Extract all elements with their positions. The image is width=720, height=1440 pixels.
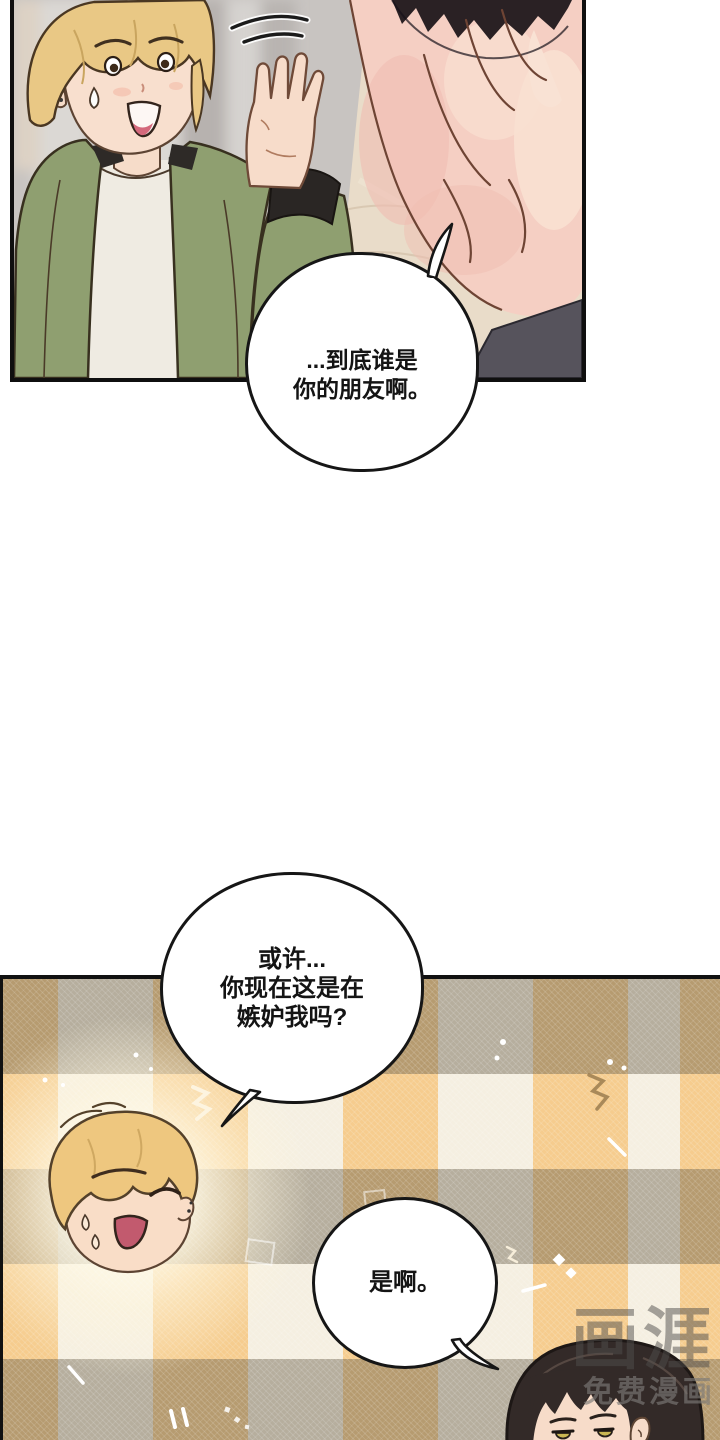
speech-bubble-1: ...到底谁是 你的朋友啊。	[245, 252, 479, 472]
bubble2-tail	[216, 1086, 264, 1130]
chibi-blond-face	[33, 1099, 223, 1289]
bubble2-line: 你现在这是在	[220, 974, 364, 1003]
sparkle-square-trail	[224, 1406, 249, 1429]
bubble3-tail	[448, 1336, 504, 1372]
sparkle-diamond	[565, 1267, 576, 1278]
sparkle-slash	[171, 1409, 187, 1427]
watermark: 画涯 免费漫画	[571, 1306, 715, 1408]
sparkle-diamond	[553, 1253, 566, 1266]
sparkle-zigzag	[589, 1075, 607, 1109]
white-shirt	[88, 160, 182, 378]
watermark-tagline: 免费漫画	[571, 1378, 715, 1408]
watermark-logo: 画涯	[571, 1306, 715, 1374]
bubble1-tail	[420, 222, 456, 278]
sparkle-square-outline	[246, 1239, 275, 1264]
yellow-eye-right	[598, 1431, 612, 1437]
bubble2-line: 或许...	[258, 945, 326, 974]
bubble1-line: 你的朋友啊。	[293, 375, 431, 404]
sparkle-zigzag	[507, 1247, 517, 1262]
bubble3-line: 是啊。	[369, 1268, 441, 1298]
comic-page: ...到底谁是 你的朋友啊。 或许... 你现在这是在 嫉妒我吗? 是啊。 画涯…	[0, 0, 720, 1440]
bubble2-line: 嫉妒我吗?	[237, 1003, 348, 1032]
speech-bubble-2: 或许... 你现在这是在 嫉妒我吗?	[160, 872, 424, 1104]
jacket-left	[14, 140, 102, 378]
bubble1-line: ...到底谁是	[306, 346, 417, 375]
yellow-eye-left	[556, 1433, 570, 1439]
waving-hand	[247, 53, 324, 188]
